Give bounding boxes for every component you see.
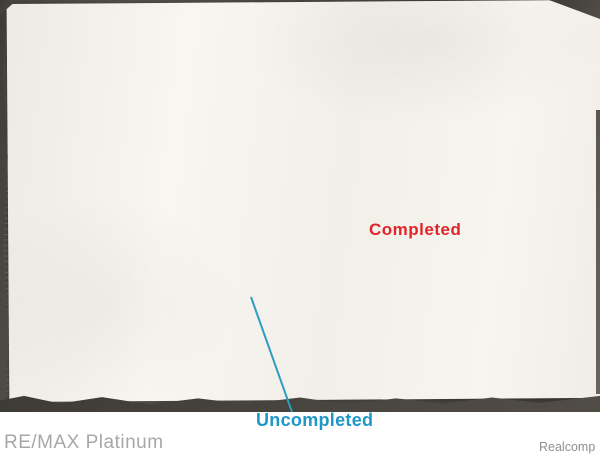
plat-map-photo: TORRY ROAD2175.08'PRELIMINARY PLAT FORSI…	[0, 0, 600, 412]
listing-photo-stage: TORRY ROAD2175.08'PRELIMINARY PLAT FORSI…	[0, 0, 600, 456]
uncompleted-annotation: Uncompleted	[256, 410, 373, 431]
completed-annotation: Completed	[369, 220, 461, 240]
paper-background	[7, 0, 600, 402]
photo-edge-right	[596, 110, 600, 394]
paper-sheet: TORRY ROAD2175.08'PRELIMINARY PLAT FORSI…	[0, 0, 600, 412]
realcomp-watermark: Realcomp	[539, 440, 595, 454]
remax-watermark: RE/MAX Platinum	[4, 432, 164, 454]
